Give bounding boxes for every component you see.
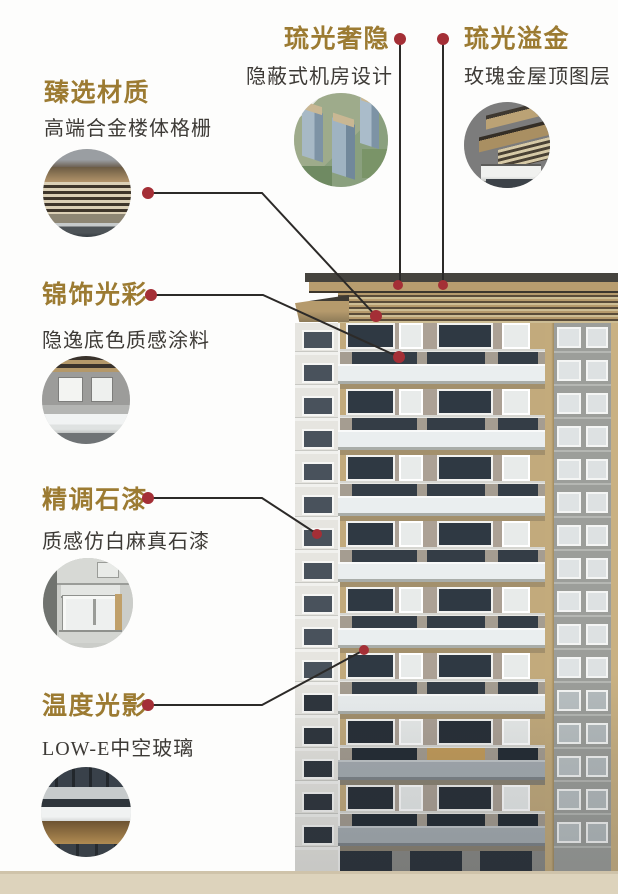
wall-segment (485, 483, 499, 496)
wing-slab (295, 681, 338, 685)
wall-segment (417, 417, 427, 430)
window-light (502, 587, 530, 613)
wall-segment (423, 389, 437, 415)
facade-window-row (340, 455, 545, 481)
corner-window (557, 327, 581, 348)
wing-slab (295, 549, 338, 553)
callout-title-materials: 臻选材质 (44, 80, 150, 107)
balcony-band (338, 430, 550, 450)
wall-segment (493, 587, 503, 613)
corner-slab-line (551, 483, 613, 485)
wall-segment (485, 351, 499, 364)
wall-segment (485, 813, 499, 826)
wall-segment (538, 747, 545, 760)
wing-slab (295, 483, 338, 487)
corner-window (586, 723, 608, 744)
wall-segment (423, 455, 437, 481)
lowe-glass-image (41, 767, 131, 857)
wall-segment (530, 653, 545, 679)
corner-slab-line (551, 714, 613, 716)
window-light (502, 389, 530, 415)
wing-window (302, 495, 334, 515)
corner-window (586, 822, 608, 843)
callout-subtitle-stonepaint: 质感仿白麻真石漆 (42, 530, 210, 554)
wing-roof (295, 295, 349, 322)
wing-slab (295, 714, 338, 718)
window-dark (352, 681, 417, 694)
facade-window-row (340, 323, 545, 349)
window-light (502, 323, 530, 349)
balcony-band (338, 628, 550, 648)
facade-window-row (340, 389, 545, 415)
wing-slab (295, 813, 338, 817)
rosegold-roof-image (464, 102, 550, 188)
corner-window (557, 723, 581, 744)
wall-segment (493, 323, 503, 349)
corner-window (586, 459, 608, 480)
wing-slab (295, 780, 338, 784)
facade-window-row (340, 351, 545, 364)
wing-window (302, 693, 334, 713)
window-light (399, 389, 423, 415)
corner-window (586, 624, 608, 645)
wing-window (302, 594, 334, 614)
window-dark (352, 483, 417, 496)
wall-segment (493, 719, 503, 745)
corner-window (557, 756, 581, 777)
facade-window-row (340, 587, 545, 613)
window-dark (437, 653, 492, 679)
wall-segment (423, 719, 437, 745)
facade-coating-image (42, 356, 130, 444)
corner-slab-line (551, 780, 613, 782)
wall-segment (538, 351, 545, 364)
marker-dot (437, 33, 449, 45)
window-dark (437, 389, 492, 415)
window-dark (498, 747, 538, 760)
wall-segment (493, 521, 503, 547)
window-dark (427, 483, 484, 496)
wall-segment (423, 521, 437, 547)
facade-window-row (340, 521, 545, 547)
wall-segment (530, 587, 545, 613)
corner-window (586, 789, 608, 810)
roof-fascia (309, 282, 618, 293)
facade-window-row (340, 785, 545, 811)
facade-window-row (340, 549, 545, 562)
wall-segment (340, 549, 352, 562)
callout-subtitle-rooftop: 玫瑰金屋顶图层 (464, 65, 611, 89)
wing-window (302, 726, 334, 746)
window-dark (352, 615, 417, 628)
metal-grille-image (43, 149, 131, 237)
wing-window (302, 462, 334, 482)
callout-subtitle-coating: 隐逸底色质感涂料 (42, 329, 210, 353)
window-dark (346, 719, 396, 745)
ground-strip (0, 871, 618, 894)
wing-slab (295, 846, 338, 850)
corner-slab-line (551, 516, 613, 518)
wing-slab (295, 582, 338, 586)
wall-segment (485, 549, 499, 562)
wall-segment (417, 615, 427, 628)
corner-slab-line (551, 351, 613, 353)
wall-segment (493, 455, 503, 481)
facade-window-row (340, 615, 545, 628)
building-facade-photo (295, 273, 618, 873)
balcony-band (338, 694, 550, 714)
wing-slab (295, 384, 338, 388)
wing-window (302, 792, 334, 812)
wing-slab (295, 417, 338, 421)
wall-segment (423, 323, 437, 349)
corner-slab-line (551, 648, 613, 650)
window-light (399, 323, 423, 349)
corner-slab-line (551, 615, 613, 617)
window-dark (352, 417, 417, 430)
wall-segment (423, 785, 437, 811)
window-dark (498, 813, 538, 826)
balcony-band (338, 364, 550, 384)
window-light (502, 785, 530, 811)
wing-window (302, 363, 334, 383)
callout-subtitle-machine-room: 隐蔽式机房设计 (246, 65, 393, 89)
wall-segment (538, 813, 545, 826)
wall-segment (340, 813, 352, 826)
window-dark (437, 521, 492, 547)
wall-segment (340, 351, 352, 364)
window-light (502, 653, 530, 679)
corner-pilaster (545, 323, 554, 873)
corner-window (586, 393, 608, 414)
window-dark (498, 549, 538, 562)
corner-pilaster (611, 323, 618, 873)
corner-window (557, 690, 581, 711)
wing-window (302, 660, 334, 680)
wall-segment (530, 455, 545, 481)
window-light (399, 455, 423, 481)
corner-window (586, 492, 608, 513)
corner-slab-line (551, 846, 613, 848)
marker-dot (142, 187, 154, 199)
wall-segment (485, 747, 499, 760)
corner-slab-line (551, 549, 613, 551)
wall-segment (538, 549, 545, 562)
window-light (502, 521, 530, 547)
corner-window (557, 393, 581, 414)
window-light (502, 719, 530, 745)
wall-segment (417, 681, 427, 694)
window-dark (498, 483, 538, 496)
callout-title-coating: 锦饰光彩 (42, 282, 148, 309)
corner-slab-line (551, 747, 613, 749)
callout-title-machine-room: 琉光奢隐 (284, 26, 390, 53)
corner-window (557, 492, 581, 513)
wall-segment (493, 785, 503, 811)
wing-slab (295, 648, 338, 652)
window-dark (352, 747, 417, 760)
corner-window (586, 591, 608, 612)
wing-window (302, 561, 334, 581)
wall-segment (493, 389, 503, 415)
callout-title-stonepaint: 精调石漆 (42, 487, 148, 514)
infographic-canvas: 臻选材质 高端合金楼体格栅 锦饰光彩 隐逸底色质感涂料 精调石漆 质感仿白麻真石… (0, 0, 618, 894)
stone-paint-window-image (43, 558, 133, 648)
wall-segment (530, 389, 545, 415)
facade-window-row (340, 719, 545, 745)
corner-slab-line (551, 582, 613, 584)
wall-segment (417, 549, 427, 562)
corner-window (586, 558, 608, 579)
balcony-band (338, 496, 550, 516)
corner-window (586, 690, 608, 711)
wall-segment (530, 521, 545, 547)
wing-window (302, 825, 334, 845)
window-light (399, 785, 423, 811)
marker-dot (394, 33, 406, 45)
window-light (399, 587, 423, 613)
window-dark (437, 719, 492, 745)
wall-segment (538, 615, 545, 628)
corner-window (586, 525, 608, 546)
corner-window (586, 360, 608, 381)
wall-segment (530, 785, 545, 811)
corner-window (557, 624, 581, 645)
wall-segment (538, 483, 545, 496)
wall-segment (493, 653, 503, 679)
wall-segment (340, 417, 352, 430)
corner-window (557, 525, 581, 546)
aerial-towers-image (294, 93, 388, 187)
window-dark (437, 587, 492, 613)
wall-segment (530, 719, 545, 745)
corner-window (557, 822, 581, 843)
wall-segment (340, 681, 352, 694)
window-dark (427, 615, 484, 628)
wall-segment (340, 483, 352, 496)
corner-window (557, 591, 581, 612)
corner-window (557, 360, 581, 381)
facade-window-row (340, 653, 545, 679)
facade-window-row (340, 813, 545, 826)
wall-segment (530, 323, 545, 349)
corner-window (586, 426, 608, 447)
wing-slab (295, 615, 338, 619)
callout-subtitle-materials: 高端合金楼体格栅 (44, 117, 212, 141)
balcony-band (338, 826, 550, 846)
wall-segment (485, 417, 499, 430)
wing-slab (295, 450, 338, 454)
wing-window (302, 429, 334, 449)
wall-segment (485, 681, 499, 694)
wall-segment (417, 813, 427, 826)
ground-floor-windows (340, 851, 545, 873)
window-dark (346, 323, 396, 349)
callout-title-rooftop: 琉光溢金 (464, 26, 570, 53)
wing-window (302, 627, 334, 647)
window-dark (346, 389, 396, 415)
wing-window (302, 396, 334, 416)
corner-window (557, 657, 581, 678)
window-dark (427, 813, 484, 826)
facade-window-row (340, 681, 545, 694)
corner-slab-line (551, 813, 613, 815)
wall-segment (423, 653, 437, 679)
window-dark (346, 653, 396, 679)
balcony-band (338, 760, 550, 780)
callout-title-glass: 温度光影 (42, 693, 148, 720)
window-dark (352, 549, 417, 562)
facade-window-row (340, 747, 545, 760)
window-light (399, 653, 423, 679)
wall-segment (538, 417, 545, 430)
corner-window (557, 558, 581, 579)
window-dark (498, 681, 538, 694)
window-dark (346, 785, 396, 811)
window-dark (346, 521, 396, 547)
corner-slab-line (551, 417, 613, 419)
window-dark (352, 351, 417, 364)
wall-segment (423, 587, 437, 613)
window-dark (427, 351, 484, 364)
wing-window (302, 528, 334, 548)
wall-segment (340, 615, 352, 628)
corner-slab-line (551, 450, 613, 452)
corner-window (586, 756, 608, 777)
window-dark (437, 455, 492, 481)
window-dark (352, 813, 417, 826)
wing-slab (295, 351, 338, 355)
wall-segment (417, 483, 427, 496)
corner-window (557, 789, 581, 810)
wing-slab (295, 516, 338, 520)
roof-louver-band (338, 293, 618, 323)
corner-window (557, 459, 581, 480)
facade-window-row (340, 483, 545, 496)
window-dark (346, 587, 396, 613)
window-dark (437, 323, 492, 349)
roof-eave (305, 273, 618, 282)
wing-window (302, 759, 334, 779)
window-dark (427, 681, 484, 694)
window-dark (498, 351, 538, 364)
corner-slab-line (551, 384, 613, 386)
balcony-band (338, 562, 550, 582)
window-light (502, 455, 530, 481)
window-dark (427, 549, 484, 562)
corner-window (586, 657, 608, 678)
facade-window-row (340, 417, 545, 430)
window-light (399, 521, 423, 547)
corner-slab-line (551, 681, 613, 683)
leader-stonepaint (150, 498, 317, 534)
wall-segment (340, 747, 352, 760)
wing-window (302, 330, 334, 350)
wall-segment (538, 681, 545, 694)
wall-segment (417, 351, 427, 364)
window-dark (427, 417, 484, 430)
wall-segment (417, 747, 427, 760)
wall-segment (485, 615, 499, 628)
window-lit (427, 747, 484, 760)
window-dark (498, 417, 538, 430)
window-light (399, 719, 423, 745)
window-dark (437, 785, 492, 811)
corner-window (557, 426, 581, 447)
window-dark (346, 455, 396, 481)
wing-slab (295, 747, 338, 751)
callout-subtitle-glass: LOW-E中空玻璃 (42, 737, 194, 761)
corner-window (586, 327, 608, 348)
window-dark (498, 615, 538, 628)
